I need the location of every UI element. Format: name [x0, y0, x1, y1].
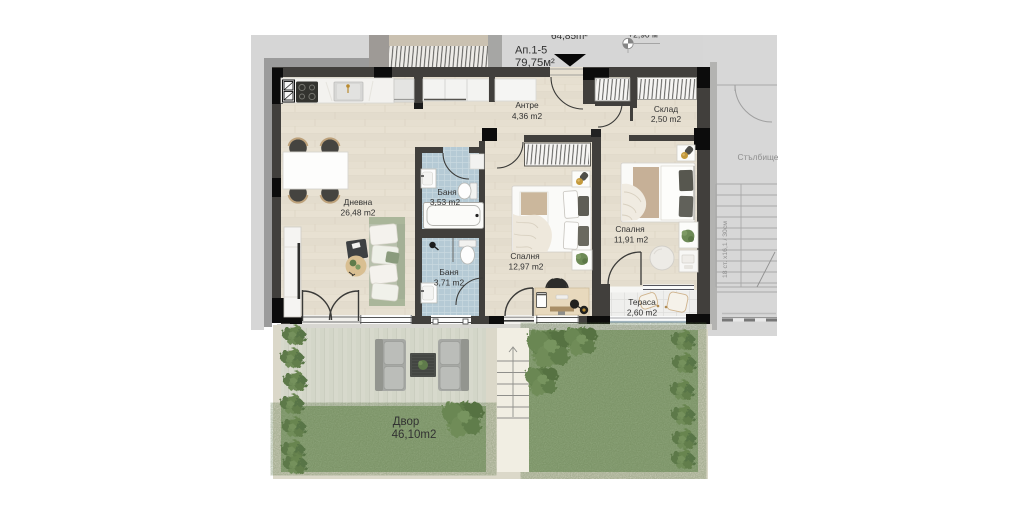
svg-text:Баня: Баня [439, 267, 458, 277]
svg-text:4,36 m2: 4,36 m2 [512, 111, 543, 121]
svg-text:79,75м²: 79,75м² [515, 57, 555, 69]
svg-text:3,71 m2: 3,71 m2 [434, 278, 465, 288]
svg-text:Спалня: Спалня [510, 251, 539, 261]
svg-text:Ап.1-5: Ап.1-5 [515, 45, 547, 57]
svg-text:Дневна: Дневна [344, 197, 373, 207]
svg-text:Баня: Баня [437, 187, 456, 197]
svg-text:2,60 m2: 2,60 m2 [627, 308, 658, 318]
svg-text:Спалня: Спалня [615, 224, 644, 234]
svg-text:Стълбище: Стълбище [738, 152, 779, 162]
svg-text:Склад: Склад [654, 104, 678, 114]
svg-text:12,97 m2: 12,97 m2 [509, 262, 544, 272]
svg-text:3,53 m2: 3,53 m2 [430, 197, 461, 207]
svg-text:46,10m2: 46,10m2 [392, 429, 437, 441]
svg-text:Антре: Антре [515, 100, 539, 110]
svg-text:11,91 m2: 11,91 m2 [614, 235, 649, 245]
svg-text:26,48 m2: 26,48 m2 [341, 208, 376, 218]
svg-text:2,50 m2: 2,50 m2 [651, 114, 682, 124]
svg-text:Тераса: Тераса [628, 297, 656, 307]
svg-text:18 ст. х16,1 / 30см: 18 ст. х16,1 / 30см [722, 221, 729, 278]
svg-text:Двор: Двор [393, 416, 420, 428]
